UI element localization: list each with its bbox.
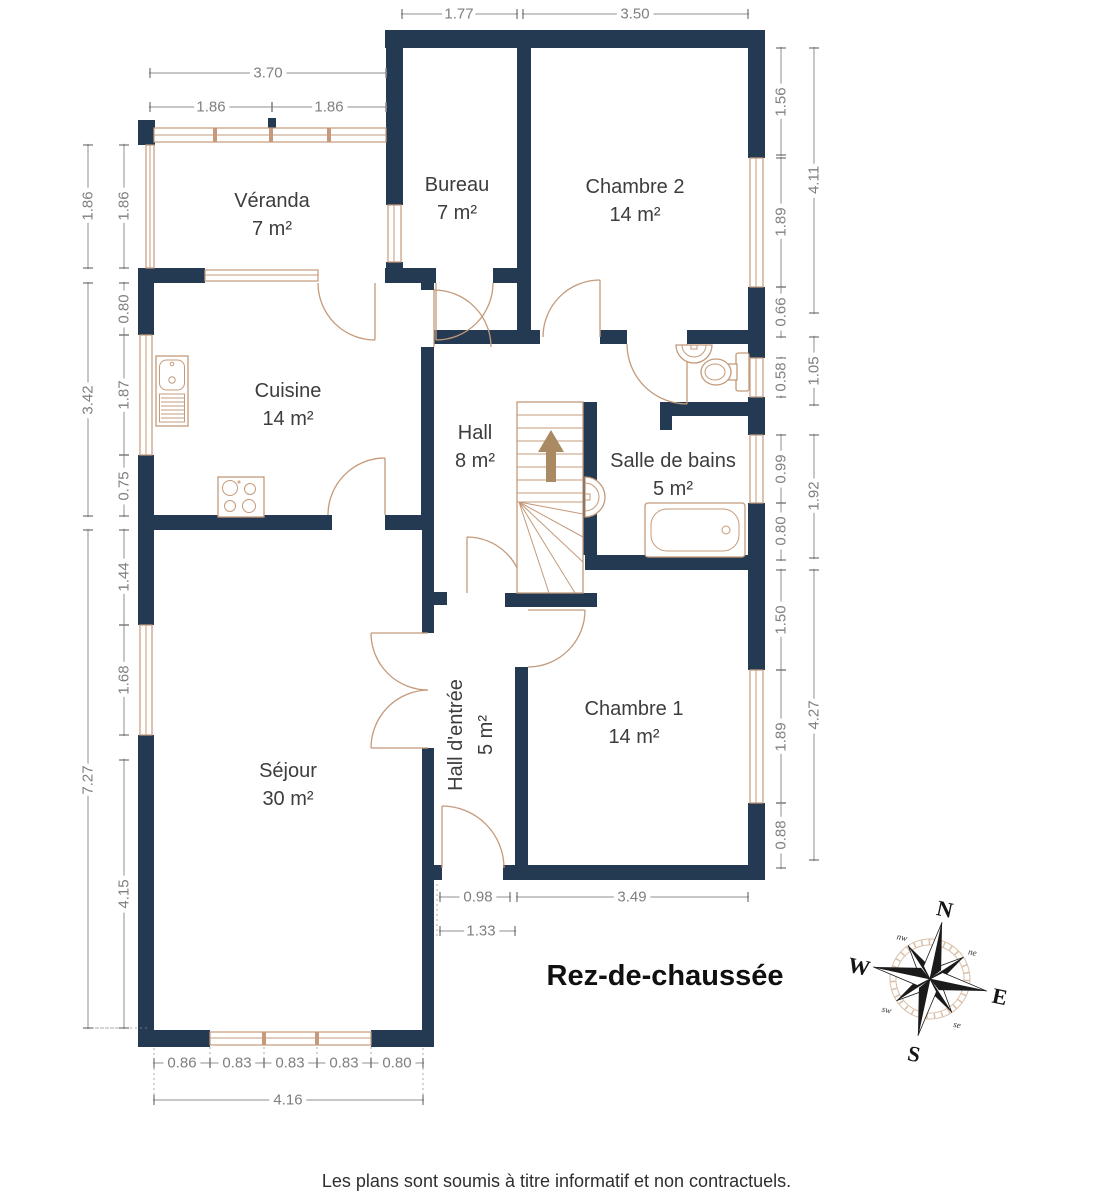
dim-sejour-seg2: 0.83 xyxy=(222,1055,251,1072)
room-labels: Véranda 7 m² Bureau 7 m² Chambre 2 14 m²… xyxy=(234,174,736,810)
room-chambre1-name: Chambre 1 xyxy=(585,698,684,720)
room-chambre1-area: 14 m² xyxy=(608,726,659,748)
room-hall-name: Hall xyxy=(458,422,492,444)
dim-wc-total: 1.05 xyxy=(806,356,823,385)
dim-chambre2-window: 1.89 xyxy=(773,207,790,236)
door-front-entrance xyxy=(442,806,504,868)
dim-veranda-right: 1.86 xyxy=(314,99,343,116)
dim-veranda-width: 3.70 xyxy=(253,65,282,82)
staircase xyxy=(517,402,583,593)
room-hall-entree-area: 5 m² xyxy=(475,715,497,755)
compass-west: W xyxy=(846,952,873,981)
dim-entry-width: 1.33 xyxy=(466,923,495,940)
window-wc xyxy=(750,358,763,397)
room-bureau-area: 7 m² xyxy=(437,202,477,224)
window-cuisine-left xyxy=(140,335,152,455)
bathroom-sink xyxy=(585,477,605,517)
dim-chambre2-total: 4.11 xyxy=(806,166,823,194)
dim-chambre1-wall-bottom: 0.88 xyxy=(773,820,790,849)
kitchen-sink xyxy=(156,356,188,426)
dim-chambre1-width: 3.49 xyxy=(617,889,646,906)
room-hall-area: 8 m² xyxy=(455,450,495,472)
dim-sejour-seg4: 0.83 xyxy=(329,1055,358,1072)
dim-wc-wall: 0.66 xyxy=(773,297,790,326)
dim-bath-window: 0.99 xyxy=(773,454,790,483)
compass-northeast: ne xyxy=(967,946,977,958)
dim-chambre1-wall-top: 1.50 xyxy=(773,605,790,634)
window-bureau xyxy=(388,205,401,262)
dim-sejour-wall-bottom: 4.15 xyxy=(116,879,133,908)
dim-cuisine-window: 1.87 xyxy=(116,380,133,409)
dim-chambre2-width: 3.50 xyxy=(620,6,649,23)
dim-sejour-seg1: 0.86 xyxy=(167,1055,196,1072)
dim-chambre1-total: 4.27 xyxy=(806,700,823,729)
dim-sejour-width: 4.16 xyxy=(273,1092,302,1109)
bathtub xyxy=(645,503,745,557)
compass-southwest: sw xyxy=(881,1004,892,1016)
room-salle-de-bains-name: Salle de bains xyxy=(610,450,736,472)
room-veranda-name: Véranda xyxy=(234,190,310,212)
room-sejour-name: Séjour xyxy=(259,760,317,782)
compass-rose: N E S W nw ne sw se xyxy=(830,880,1025,1083)
dim-veranda-h-inner: 1.86 xyxy=(116,191,133,220)
room-hall-entree-name: Hall d'entrée xyxy=(445,679,467,791)
dim-cuisine-total: 3.42 xyxy=(80,385,97,414)
compass-south: S xyxy=(906,1040,923,1067)
room-sejour-area: 30 m² xyxy=(262,788,313,810)
dim-wc-window: 0.58 xyxy=(773,362,790,391)
stove xyxy=(218,477,264,517)
doors xyxy=(318,280,687,868)
dim-cuisine-wall-top: 0.80 xyxy=(116,294,133,323)
room-bureau-name: Bureau xyxy=(425,174,490,196)
window-sejour-bottom xyxy=(210,1032,371,1045)
room-cuisine-name: Cuisine xyxy=(255,380,322,402)
room-chambre2-name: Chambre 2 xyxy=(586,176,685,198)
door-sejour-double-bottom xyxy=(371,690,428,748)
floor-plan-page: 1.77 3.50 3.70 1.86 1.86 1.86 1.86 3.42 … xyxy=(0,0,1113,1200)
floor-plan: 1.77 3.50 3.70 1.86 1.86 1.86 1.86 3.42 … xyxy=(0,0,1113,1200)
room-salle-de-bains-area: 5 m² xyxy=(653,478,693,500)
dim-sejour-seg5: 0.80 xyxy=(382,1055,411,1072)
wc-hand-basin xyxy=(676,345,712,363)
dim-cuisine-wall-bottom: 0.75 xyxy=(116,471,133,500)
window-chambre2 xyxy=(750,158,763,287)
compass-southeast: se xyxy=(952,1019,961,1030)
footer-disclaimer: Les plans sont soumis à titre informatif… xyxy=(0,1171,1113,1192)
compass-north: N xyxy=(934,895,955,923)
dim-veranda-left: 1.86 xyxy=(196,99,225,116)
room-veranda-area: 7 m² xyxy=(252,218,292,240)
door-chambre1 xyxy=(528,610,585,667)
compass-northwest: nw xyxy=(896,931,908,943)
compass-star xyxy=(861,910,999,1048)
window-cuisine-top xyxy=(205,270,318,281)
windows xyxy=(140,128,763,1045)
door-cuisine-sejour xyxy=(328,458,385,515)
dim-chambre2-wall-top: 1.56 xyxy=(773,87,790,116)
door-sejour-double-top xyxy=(371,633,428,690)
dim-sejour-wall-top: 1.44 xyxy=(116,562,133,591)
door-veranda-cuisine xyxy=(318,283,375,340)
door-chambre2 xyxy=(543,280,600,337)
dim-veranda-h-outer: 1.86 xyxy=(80,191,97,220)
dim-sejour-seg3: 0.83 xyxy=(275,1055,304,1072)
compass-east: E xyxy=(990,983,1010,1011)
dim-chambre1-window: 1.89 xyxy=(773,722,790,751)
dim-sejour-window: 1.68 xyxy=(116,665,133,694)
window-chambre1 xyxy=(750,670,763,803)
room-cuisine-area: 14 m² xyxy=(262,408,313,430)
door-hall-entree xyxy=(467,537,523,593)
window-veranda-left xyxy=(146,145,154,268)
dim-entry-door: 0.98 xyxy=(463,889,492,906)
window-veranda-top xyxy=(154,128,386,142)
floor-title: Rez-de-chaussée xyxy=(547,960,784,992)
dim-bath-total: 1.92 xyxy=(806,481,823,510)
toilet xyxy=(701,353,749,391)
window-sejour-left xyxy=(140,625,152,735)
window-salle-de-bains xyxy=(750,435,763,503)
room-chambre2-area: 14 m² xyxy=(609,204,660,226)
dim-bath-wall: 0.80 xyxy=(773,516,790,545)
dim-bureau-width: 1.77 xyxy=(444,6,473,23)
dim-sejour-total: 7.27 xyxy=(80,765,97,794)
